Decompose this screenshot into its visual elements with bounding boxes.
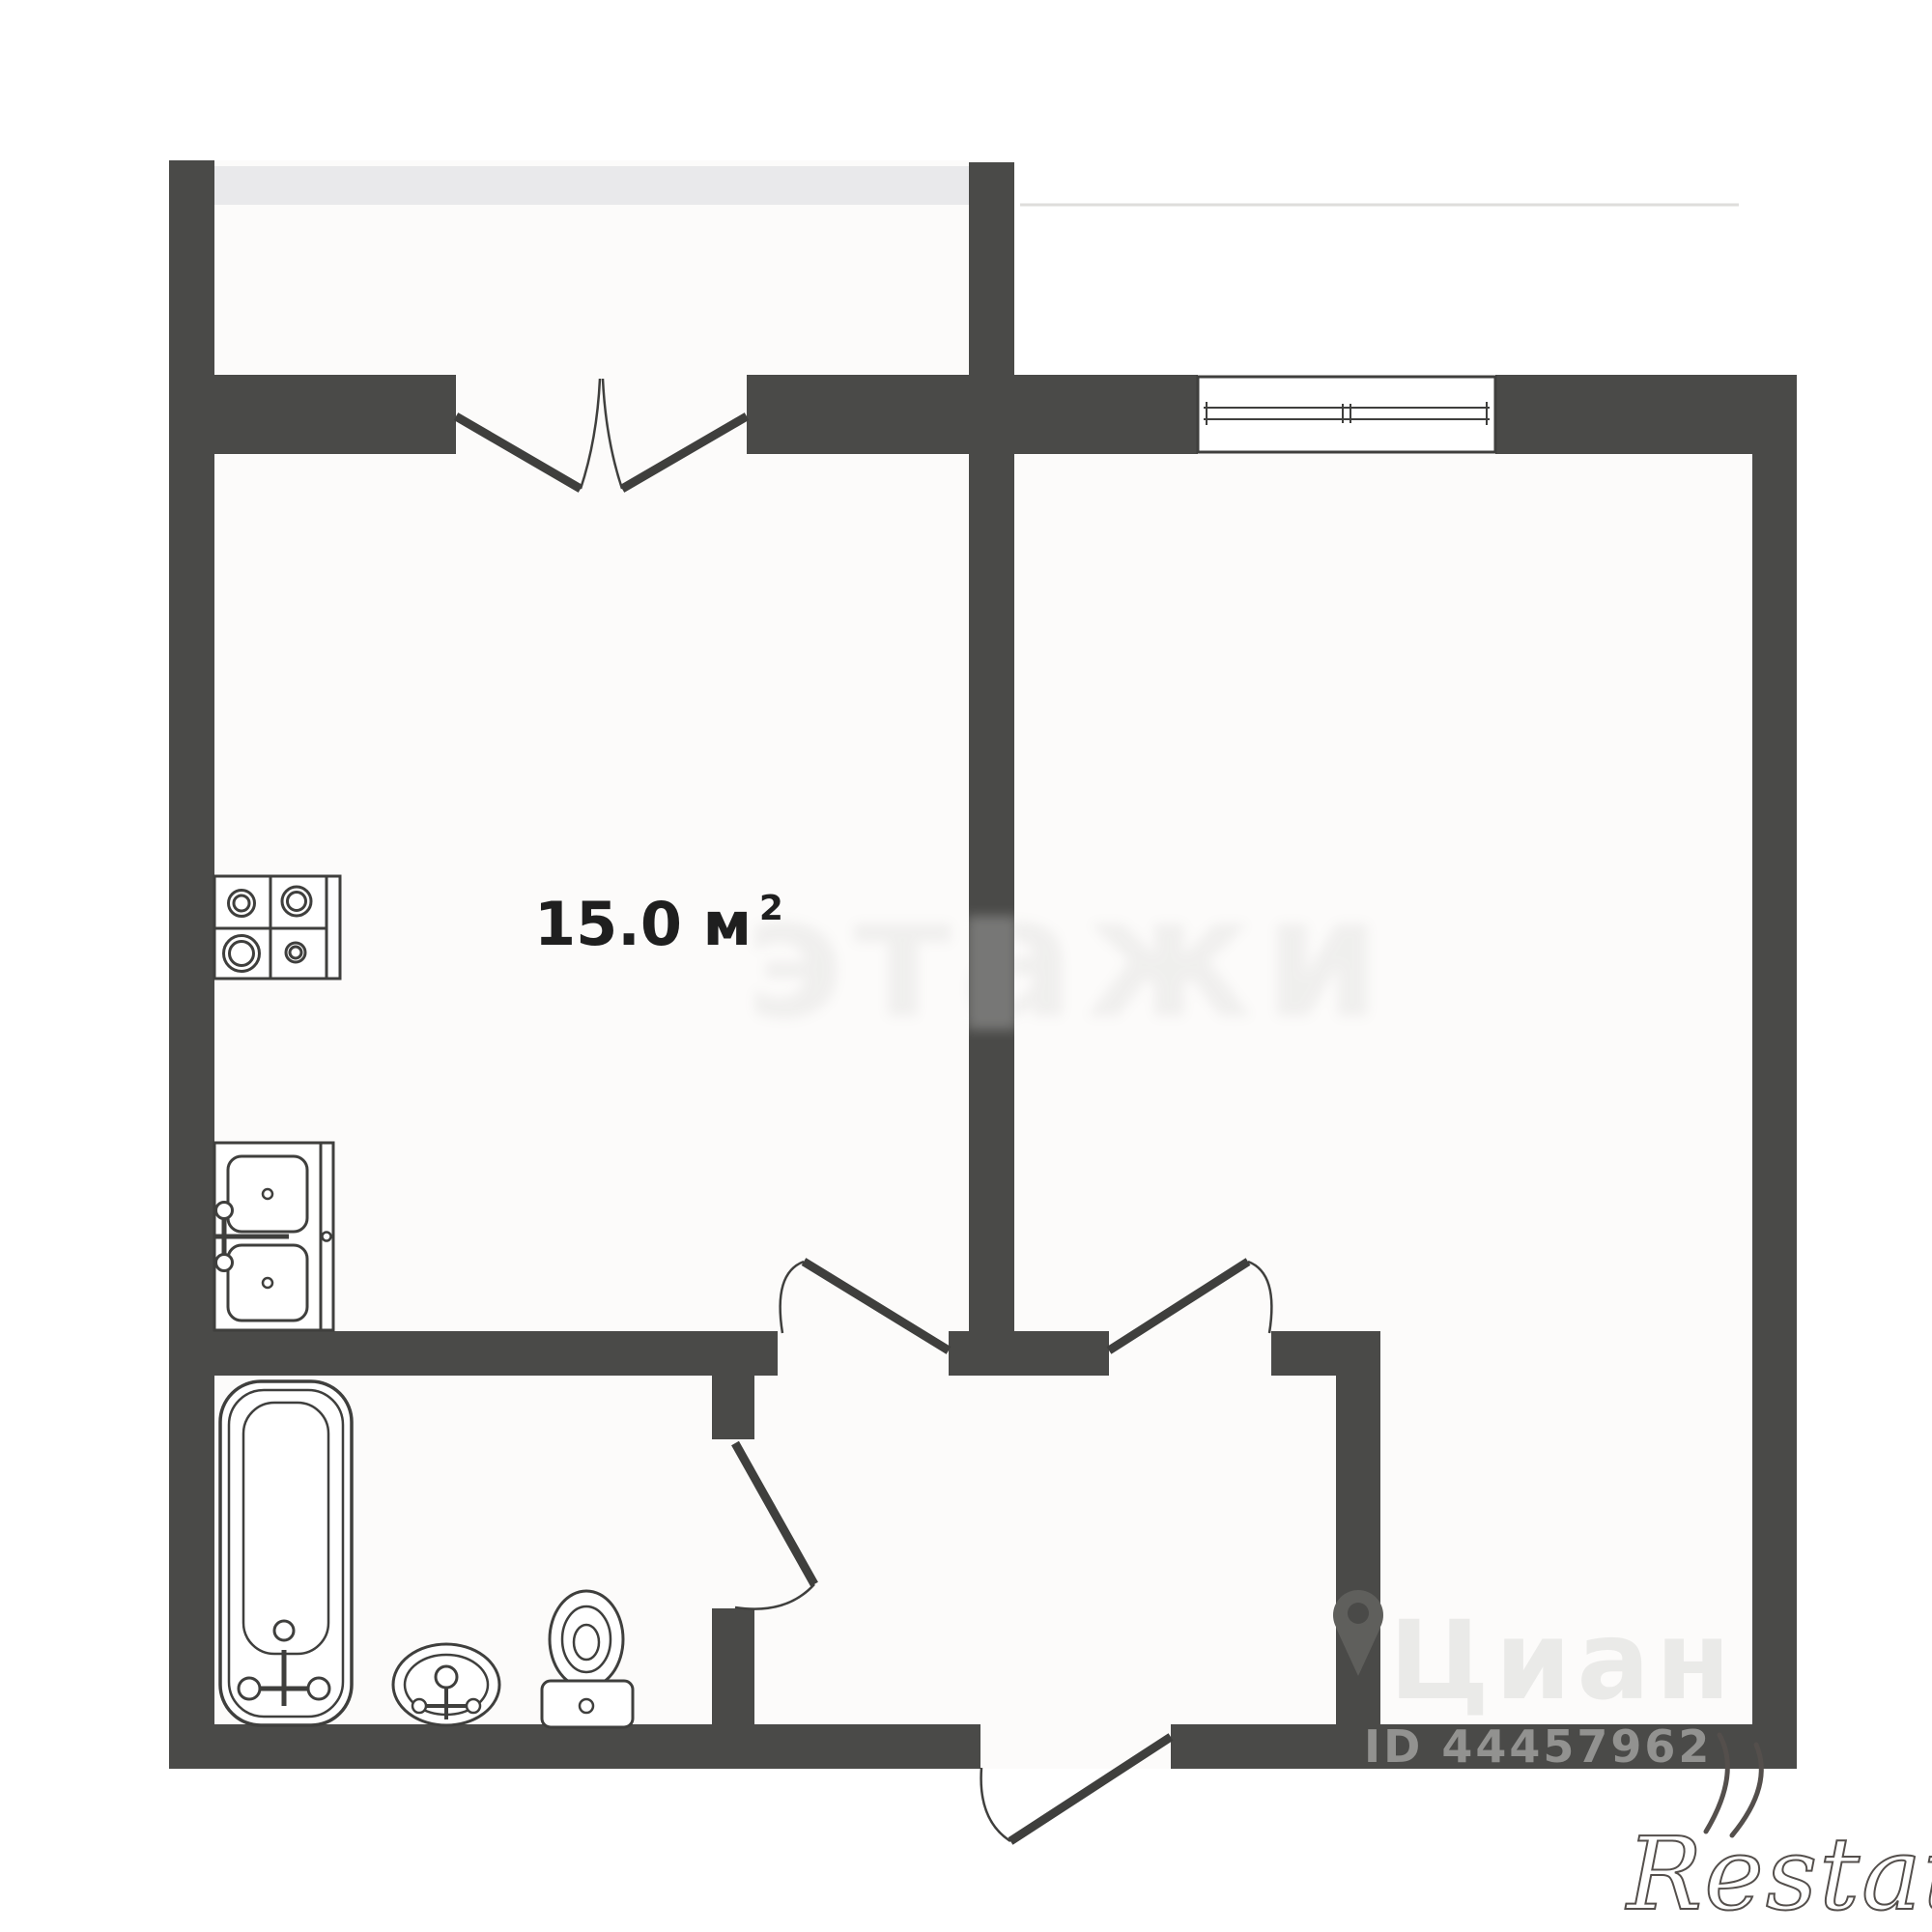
bathroom-sink-faucet-base (436, 1666, 457, 1688)
center-watermark-text: этажи (744, 861, 1391, 1057)
balcony-glazing-band (214, 166, 969, 205)
sink-faucet-handle-bottom (216, 1255, 233, 1271)
stove-icon (214, 876, 340, 979)
sink-faucet-handle-top (216, 1203, 233, 1219)
wall-bathroom-top (214, 1331, 778, 1376)
wall-kitchen-top-right (747, 375, 969, 454)
window (1198, 377, 1495, 452)
brand-watermark-text: Restate (1625, 1815, 1932, 1932)
center-watermark-wall-blob (967, 916, 1017, 1030)
kitchen-sink-icon (214, 1143, 333, 1330)
bathtub-handle-left (239, 1678, 260, 1699)
wall-outer-right (1752, 375, 1797, 1769)
portal-watermark-text: Циан (1389, 1599, 1736, 1724)
wall-bathroom-right-lower (712, 1608, 754, 1724)
bathtub-handle-right (308, 1678, 329, 1699)
bathroom-sink-icon (393, 1644, 499, 1725)
bathroom-sink-handle-left (412, 1699, 426, 1713)
toilet-base (542, 1681, 633, 1727)
wall-outer-left (169, 160, 214, 1769)
wall-hall-band-right (1271, 1331, 1380, 1376)
room-area-sup: 2 (759, 889, 783, 928)
wall-hall-stub (949, 1331, 1109, 1376)
bathtub-icon (220, 1381, 352, 1725)
wall-bottom-left (169, 1724, 980, 1769)
room-area-value: 15.0 м (534, 889, 752, 959)
floorplan-canvas: этажи (0, 0, 1932, 1932)
wall-kitchen-top-left (214, 375, 456, 454)
wall-bathroom-right-upper (712, 1331, 754, 1439)
wall-central-divider (969, 162, 1014, 1376)
wall-room-top-right-of-window (1495, 375, 1797, 454)
wall-room-top-left-of-window (1014, 375, 1198, 454)
bathroom-sink-handle-right (467, 1699, 480, 1713)
listing-id-text: ID 44457962 (1364, 1720, 1712, 1773)
map-pin-hole (1348, 1603, 1369, 1624)
window-frame (1198, 377, 1495, 452)
room-area-label: 15.0 м 2 (534, 889, 783, 959)
